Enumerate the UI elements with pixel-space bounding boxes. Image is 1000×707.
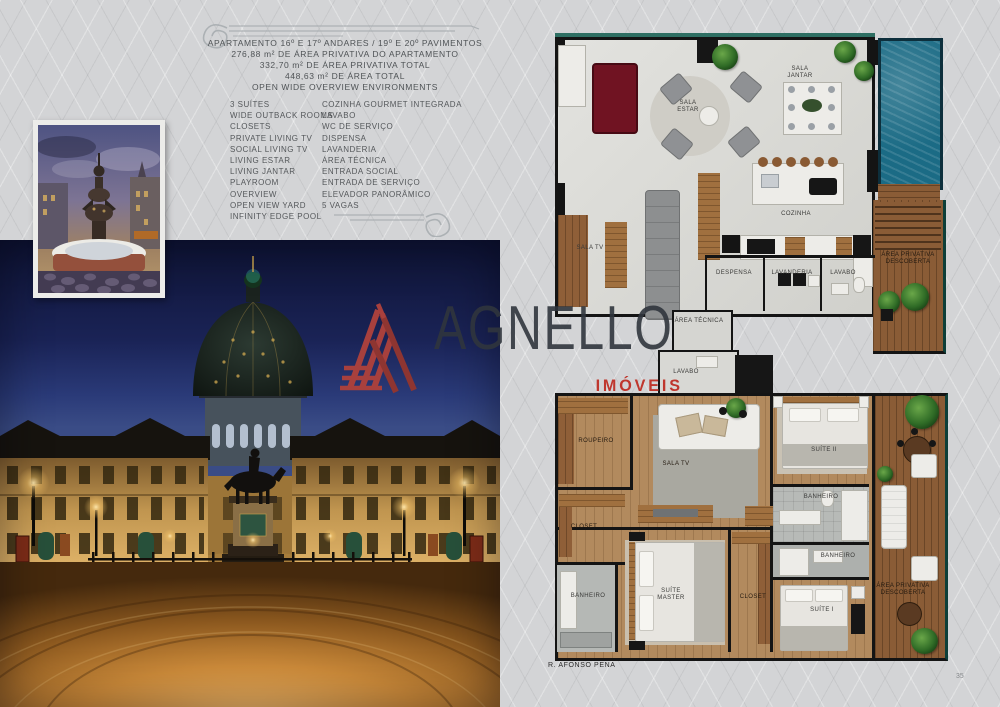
room-label: ROUPEIRO <box>571 438 621 445</box>
planter-box <box>881 309 893 321</box>
feature-item: 5 VAGAS <box>322 200 462 211</box>
wall <box>820 258 822 311</box>
shower-floor <box>560 632 612 648</box>
fountain-photo <box>33 120 165 298</box>
agnello-logo-mark <box>338 294 428 396</box>
feature-item: LAVABO <box>322 110 462 121</box>
page-number: 35 <box>956 673 964 680</box>
bed-suite-2 <box>782 403 868 469</box>
feature-item: OVERVIEW <box>230 189 333 200</box>
deck-chair <box>897 440 904 447</box>
nightstand <box>859 396 869 408</box>
header-line-1: APARTAMENTO 16º E 17º ANDARES / 19º E 20… <box>175 38 515 49</box>
room-label: SALA TV <box>651 461 701 468</box>
room-label: COZINHA <box>771 211 821 218</box>
wall <box>770 577 869 580</box>
agnello-logo: AGNELLO IMÓVEIS <box>338 292 683 400</box>
room-label: SALA TV <box>565 245 615 252</box>
tall-cabinet <box>698 173 720 260</box>
room-label: SUÍTE I <box>797 607 847 614</box>
feature-column-left: 3 SUÍTES WIDE OUTBACK ROOMS CLOSETS PRIV… <box>230 99 333 222</box>
plant <box>854 61 874 81</box>
nightstand <box>629 532 645 541</box>
feature-item: SOCIAL LIVING TV <box>230 144 333 155</box>
header-line-5: OPEN WIDE OVERVIEW ENVIRONMENTS <box>175 82 515 93</box>
room-label: SALA JANTAR <box>780 66 820 80</box>
tv-screen <box>653 509 698 517</box>
wall <box>705 258 707 311</box>
pillow <box>785 589 813 602</box>
feature-item: WIDE OUTBACK ROOMS <box>230 110 333 121</box>
room-label: LAVANDERIA <box>767 270 817 277</box>
logo-tagline-text: IMÓVEIS <box>596 376 683 396</box>
feature-item: LIVING JANTAR <box>230 166 333 177</box>
wardrobe <box>558 398 628 414</box>
elevator-shaft <box>735 355 773 395</box>
bar-stool <box>758 157 768 167</box>
floor-plan-lower: ROUPEIRO SALA TV SUÍTE II BANHEIRO CLOSE… <box>553 390 950 666</box>
feature-item: ELEVADOR PANORÂMICO <box>322 189 462 200</box>
double-vanity <box>560 571 577 629</box>
cushion <box>675 413 703 438</box>
feature-item: PRIVATE LIVING TV <box>230 133 333 144</box>
place-setting <box>788 123 795 130</box>
feature-item: 3 SUÍTES <box>230 99 333 110</box>
place-setting <box>808 123 815 130</box>
room-label: CLOSET <box>728 594 778 601</box>
bed-suite-1 <box>780 585 848 651</box>
place-setting <box>828 123 835 130</box>
oven <box>747 239 775 254</box>
side-table <box>719 407 727 415</box>
plant <box>911 628 938 654</box>
cooktop <box>809 178 837 195</box>
wall <box>867 150 878 192</box>
sideboard <box>558 45 586 107</box>
place-setting <box>788 104 795 111</box>
feature-list: 3 SUÍTES WIDE OUTBACK ROOMS CLOSETS PRIV… <box>230 99 490 229</box>
dining-table <box>783 82 842 135</box>
billiard-table <box>592 63 638 134</box>
place-setting <box>828 104 835 111</box>
wall <box>630 393 633 490</box>
room-label: SALA ESTAR <box>668 100 708 114</box>
plant <box>712 44 738 70</box>
place-setting <box>808 86 815 93</box>
wall <box>728 530 731 652</box>
wall <box>722 235 740 253</box>
kitchen-island <box>752 163 844 205</box>
room-label: BANHEIRO <box>791 494 851 501</box>
feature-item: DISPENSA <box>322 133 462 144</box>
tv-console <box>605 222 627 288</box>
place-setting <box>828 86 835 93</box>
room-label: CLOSET <box>559 524 609 531</box>
feature-item: WC DE SERVIÇO <box>322 121 462 132</box>
plant <box>905 395 939 429</box>
room-label: SUÍTE MASTER <box>651 588 691 602</box>
logo-brand-text: AGNELLO <box>434 298 673 360</box>
feature-item: INFINITY EDGE POOL <box>230 211 333 222</box>
lavabo-sink <box>831 283 849 295</box>
feature-item: COZINHA GOURMET INTEGRADA <box>322 99 462 110</box>
centerpiece <box>802 99 822 112</box>
sink <box>761 174 779 188</box>
toilet <box>853 277 865 293</box>
nightstand <box>629 641 645 650</box>
feature-item: LAVANDERIA <box>322 144 462 155</box>
pillow <box>639 551 654 587</box>
shower <box>779 548 809 576</box>
closet-shelving <box>732 532 770 544</box>
bed-throw <box>694 543 724 641</box>
header-line-3: 332,70 m² DE ÁREA PRIVATIVA TOTAL <box>175 60 515 71</box>
wall <box>763 258 765 311</box>
deck-armchair <box>911 556 938 581</box>
lounge-chair <box>881 485 907 549</box>
header-line-4: 448,63 m² DE ÁREA TOTAL <box>175 71 515 82</box>
plant <box>834 41 856 63</box>
feature-item: LIVING ESTAR <box>230 155 333 166</box>
bar-stool <box>828 157 838 167</box>
bar-stool <box>786 157 796 167</box>
apartment-header: APARTAMENTO 16º E 17º ANDARES / 19º E 20… <box>175 38 515 93</box>
cushion <box>702 415 729 437</box>
room-label: LAVABO <box>818 270 868 277</box>
place-setting <box>788 86 795 93</box>
feature-item: CLOSETS <box>230 121 333 132</box>
feature-item: ENTRADA DE SERVIÇO <box>322 177 462 188</box>
room-label: SUÍTE II <box>799 447 849 454</box>
bar-stool <box>814 157 824 167</box>
cabinet <box>785 237 805 256</box>
plant <box>877 466 893 482</box>
nightstand <box>851 586 865 599</box>
room-label: ÁREA PRIVATIVA DESCOBERTA <box>876 583 930 597</box>
wall <box>705 255 875 258</box>
fridge-column <box>853 235 871 255</box>
dresser <box>851 604 865 634</box>
side-table <box>739 410 747 418</box>
brochure-page: APARTAMENTO 16º E 17º ANDARES / 19º E 20… <box>0 0 1000 707</box>
vestibule-sink <box>696 356 718 368</box>
feature-item: PLAYROOM <box>230 177 333 188</box>
cabinet <box>836 237 852 256</box>
deck-stairs <box>875 202 941 250</box>
feature-item: OPEN VIEW YARD <box>230 200 333 211</box>
room-label: BANHEIRO <box>563 593 613 600</box>
nightstand <box>773 396 783 408</box>
vanity <box>779 510 821 525</box>
feature-column-right: COZINHA GOURMET INTEGRADA LAVABO WC DE S… <box>322 99 462 211</box>
wall <box>615 562 618 652</box>
bar-stool <box>800 157 810 167</box>
deck-chair <box>929 440 936 447</box>
deck-armchair <box>911 454 937 478</box>
bar-stool <box>772 157 782 167</box>
pillow <box>827 408 859 422</box>
header-line-2: 276,88 m² DE ÁREA PRIVATIVA DO APARTAMEN… <box>175 49 515 60</box>
room-label: ÁREA PRIVATIVA DESCOBERTA <box>881 252 935 266</box>
deck-table <box>897 602 922 626</box>
plant <box>901 283 929 311</box>
feature-item: ÁREA TÉCNICA <box>322 155 462 166</box>
wall <box>555 487 630 490</box>
deck-chair <box>911 428 918 435</box>
desk <box>745 506 775 526</box>
pillow <box>815 589 843 602</box>
room-label: DESPENSA <box>709 270 759 277</box>
bed-throw <box>781 626 847 650</box>
pillow <box>789 408 821 422</box>
wardrobe <box>558 414 574 484</box>
feature-item: ENTRADA SOCIAL <box>322 166 462 177</box>
infinity-pool <box>878 38 943 190</box>
closet-shelving <box>559 494 625 507</box>
room-label: BANHEIRO <box>808 553 868 560</box>
closet-shelving <box>559 507 572 557</box>
fountain-photo-art <box>38 125 160 293</box>
street-label: R. AFONSO PENA <box>548 662 616 669</box>
